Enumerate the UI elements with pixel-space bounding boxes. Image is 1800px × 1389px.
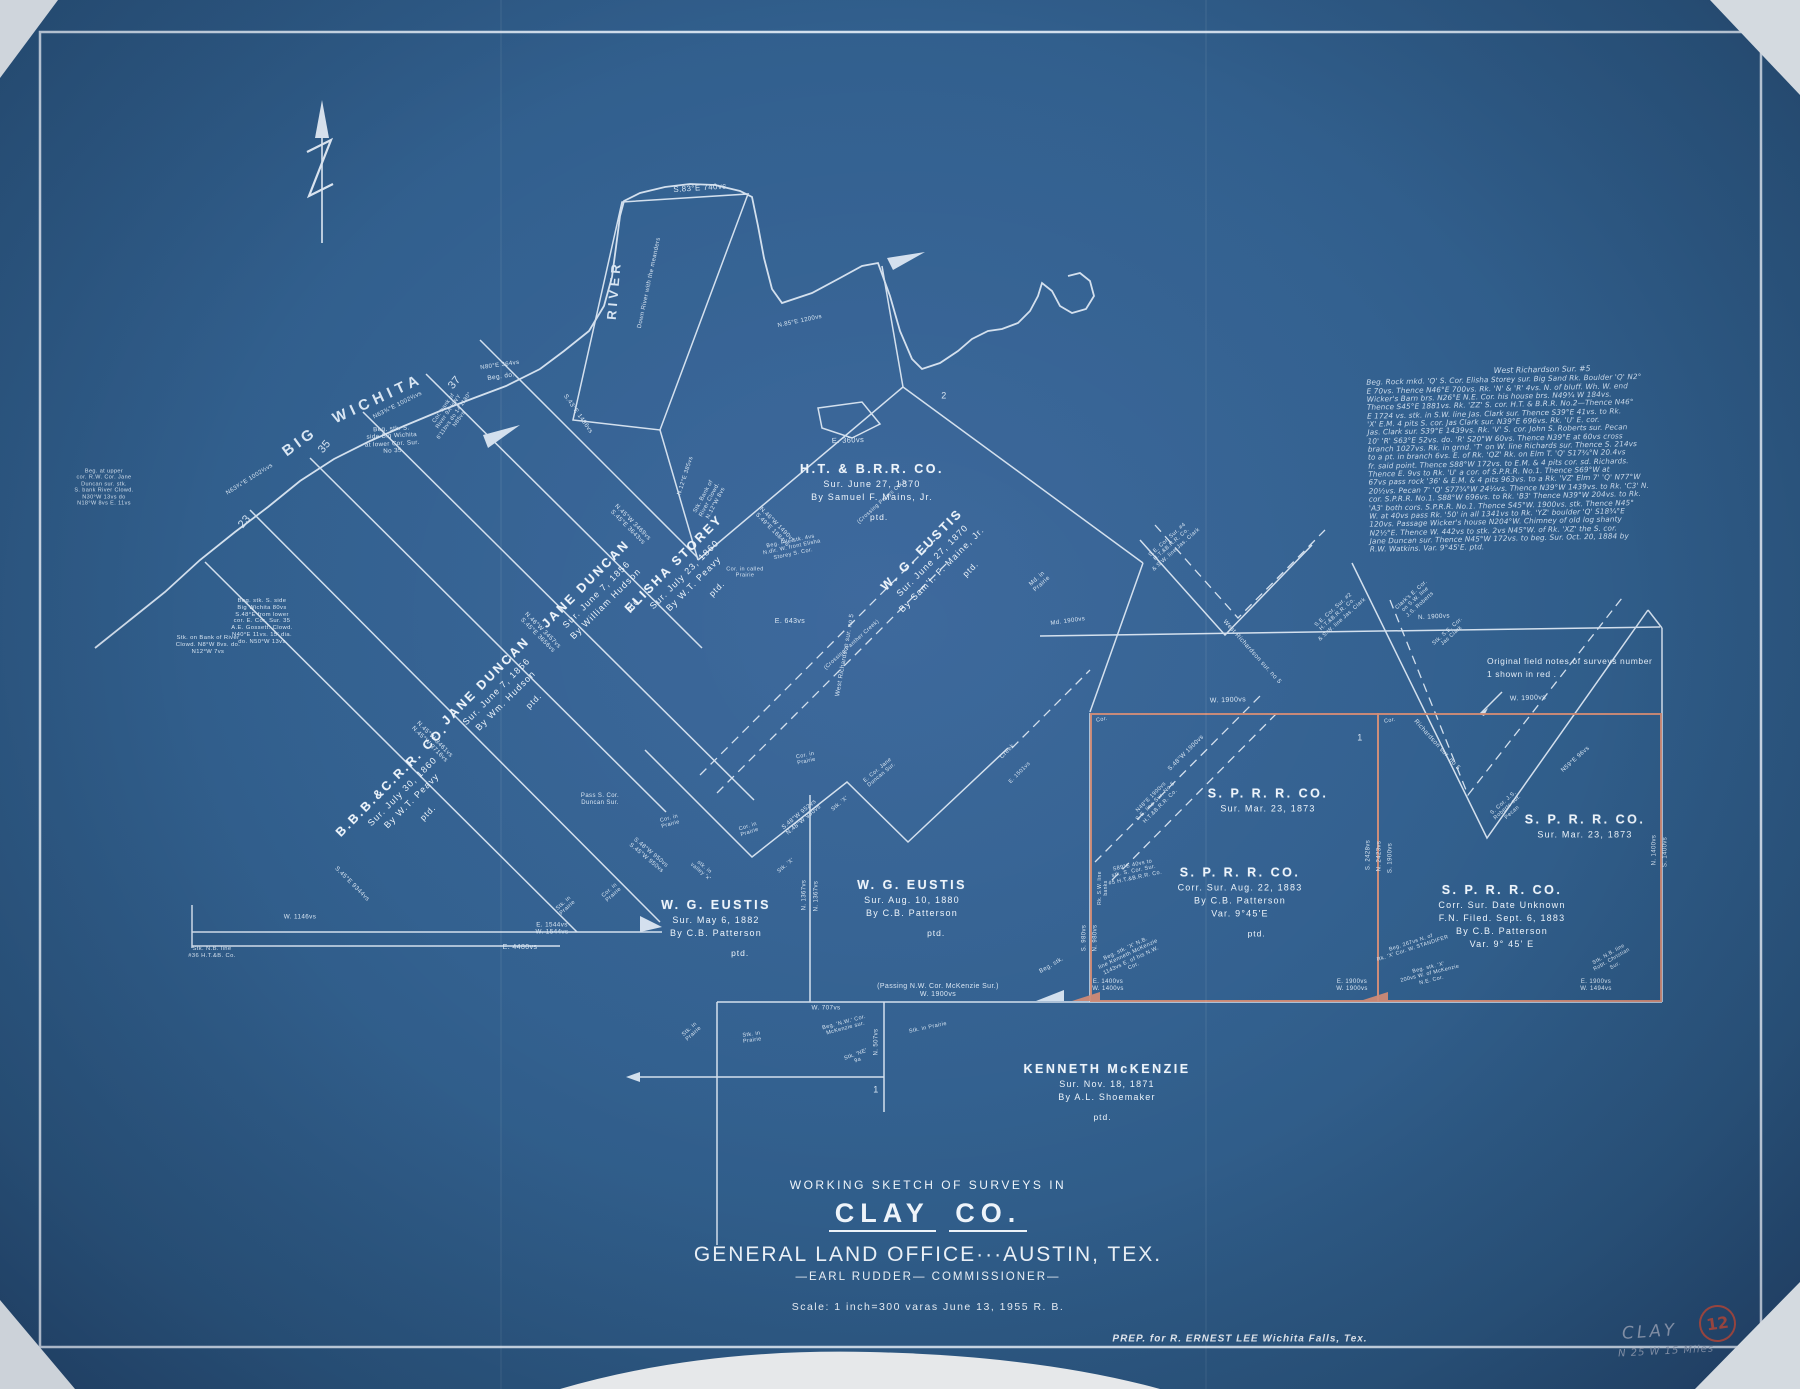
map-annotation: Beg. stk. S. side Big Wichita 80vs S.48°…	[231, 598, 292, 646]
map-annotation: 1	[1357, 733, 1362, 744]
survey-detail: F.N. Filed. Sept. 6, 1883	[1438, 913, 1565, 923]
map-annotation: E. 360vs	[832, 436, 865, 446]
patented-mark: ptd.	[1178, 929, 1303, 939]
patented-mark: ptd.	[857, 928, 967, 938]
dashed-survey-lines	[700, 525, 1622, 880]
survey-detail: Var. 9° 45' E	[1438, 939, 1565, 949]
map-annotation: S. 2428vs	[1365, 840, 1372, 870]
map-annotation: W. 707vs	[811, 1004, 840, 1011]
map-annotation: E. 1900vs W. 1900vs	[1336, 979, 1368, 993]
survey-label: S. P. R. R. CO.Sur. Mar. 23, 1873	[1208, 787, 1329, 814]
map-border-frame	[40, 32, 1761, 1347]
red-note-arrow	[1480, 692, 1502, 714]
survey-detail: By C.B. Patterson	[1178, 896, 1303, 906]
survey-name: S. P. R. R. CO.	[1208, 787, 1329, 801]
map-annotation: E. 1544vs W. 1544vs	[536, 922, 569, 937]
map-annotation: E. 1900vs W. 1494vs	[1580, 979, 1612, 993]
map-annotation: Stk. in Prairie	[742, 1030, 762, 1045]
richardson-roberts-lines	[1040, 540, 1662, 838]
map-annotation: W. 1900vs	[1510, 694, 1547, 704]
survey-name: KENNETH McKENZIE	[1023, 1062, 1190, 1076]
survey-label: W. G. EUSTISSur. May 6, 1882By C.B. Patt…	[661, 898, 771, 958]
survey-detail: By A.L. Shoemaker	[1023, 1092, 1190, 1102]
map-annotation: S. 1400vs	[1662, 837, 1669, 867]
map-annotation: N. 980vs	[1092, 925, 1099, 952]
office-line: GENERAL LAND OFFICE···AUSTIN, TEX.	[528, 1243, 1328, 1267]
commissioner-line: —EARL RUDDER— COMMISSIONER—	[528, 1271, 1328, 1283]
survey-name: W. G. EUSTIS	[661, 898, 771, 912]
survey-detail: Corr. Sur. Aug. 22, 1883	[1178, 883, 1303, 893]
map-annotation: Beg. at upper cor. R.W. Cor. Jane Duncan…	[74, 469, 133, 508]
corner-arrow-marks	[483, 252, 1064, 1082]
patented-mark: ptd.	[661, 948, 771, 958]
map-annotation: Beg. stk. S. side Big Wichita at lower C…	[364, 424, 420, 456]
map-annotation: 1	[873, 1085, 878, 1096]
preparer-credit: PREP. for R. ERNEST LEE Wichita Falls, T…	[1112, 1334, 1367, 1345]
survey-name: S. P. R. R. CO.	[1525, 813, 1646, 827]
map-title: CLAY CO.	[528, 1198, 1328, 1229]
map-annotation: 2	[941, 391, 946, 402]
red-note-line1: Original field notes of surveys number	[1487, 655, 1652, 668]
north-arrow	[307, 100, 333, 243]
map-annotation: W. 1146vs	[284, 913, 317, 920]
survey-detail: By C.B. Patterson	[857, 908, 967, 918]
survey-label: W. G. EUSTISSur. Aug. 10, 1880By C.B. Pa…	[857, 878, 967, 938]
map-annotation: E. 643vs	[775, 618, 805, 626]
map-annotation: N. 507vs	[873, 1029, 880, 1056]
survey-detail: Corr. Sur. Date Unknown	[1438, 900, 1565, 910]
survey-name: H.T. & B.R.R. CO.	[800, 462, 944, 476]
map-subtitle: WORKING SKETCH OF SURVEYS IN	[528, 1178, 1328, 1192]
sheet-number: 12	[1705, 1313, 1730, 1335]
map-annotation: N. 2423vs	[1376, 841, 1383, 872]
survey-detail: Sur. Mar. 23, 1873	[1525, 830, 1646, 840]
map-annotation: E. 4480vs	[503, 944, 538, 952]
survey-label: S. P. R. R. CO.Corr. Sur. Aug. 22, 1883B…	[1178, 866, 1303, 939]
survey-detail: By Samuel F. Mains, Jr.	[800, 492, 944, 502]
flag-parcel	[573, 194, 748, 430]
map-annotation: N. 1400vs	[1651, 835, 1658, 866]
map-annotation: Stk. on Bank of River Clowd. N8°W 8vs. d…	[176, 635, 240, 655]
survey-detail: Var. 9°45'E	[1178, 909, 1303, 919]
survey-label: S. P. R. R. CO.Sur. Mar. 23, 1873	[1525, 813, 1646, 840]
survey-detail: Sur. Nov. 18, 1871	[1023, 1079, 1190, 1089]
survey-name: S. P. R. R. CO.	[1178, 866, 1303, 880]
patented-mark: ptd.	[800, 512, 944, 522]
map-annotation: Stk. N.B. line #36 H.T.&B. Co.	[188, 946, 236, 960]
blueprint-map: S.83°E 740vsE. 360vsBIGWICHITARIVERDown …	[0, 0, 1800, 1389]
survey-label: H.T. & B.R.R. CO.Sur. June 27, 1870By Sa…	[800, 462, 944, 522]
survey-detail: Sur. Mar. 23, 1873	[1208, 804, 1329, 814]
red-ink-note: Original field notes of surveys number 1…	[1487, 655, 1652, 681]
map-annotation: E. 1400vs W. 1400vs	[1092, 979, 1124, 993]
scale-line: Scale: 1 inch=300 varas June 13, 1955 R.…	[528, 1301, 1328, 1313]
survey-detail: Sur. June 27, 1870	[800, 479, 944, 489]
survey-name: W. G. EUSTIS	[857, 878, 967, 892]
survey-detail: By C.B. Patterson	[1438, 926, 1565, 936]
map-annotation: (Passing N.W. Cor. McKenzie Sur.) W. 190…	[877, 983, 999, 1000]
field-notes-block: West Richardson Sur. #5 Beg. Rock mkd. '…	[1366, 362, 1722, 554]
map-annotation: S. 980vs	[1081, 925, 1088, 952]
survey-label: S. P. R. R. CO.Corr. Sur. Date UnknownF.…	[1438, 883, 1565, 949]
survey-detail: Sur. May 6, 1882	[661, 915, 771, 925]
map-annotation: S. 1900vs	[1387, 843, 1394, 873]
survey-label: KENNETH McKENZIESur. Nov. 18, 1871By A.L…	[1023, 1062, 1190, 1122]
patented-mark: ptd.	[1023, 1112, 1190, 1122]
county-suffix: CO.	[949, 1198, 1027, 1232]
survey-name: S. P. R. R. CO.	[1438, 883, 1565, 897]
survey-detail: Sur. Aug. 10, 1880	[857, 895, 967, 905]
map-annotation: N. 1367vs	[801, 880, 808, 911]
pencil-county-note: CLAY	[1621, 1320, 1678, 1344]
map-annotation: N. 1367vs	[813, 881, 820, 912]
map-annotation: W. 1900vs	[1210, 696, 1247, 706]
county-name: CLAY	[829, 1198, 936, 1232]
survey-detail: By C.B. Patterson	[661, 928, 771, 938]
map-annotation: Pass S. Cor. Duncan Sur.	[581, 793, 619, 807]
red-note-line2: 1 shown in red .	[1487, 668, 1652, 681]
